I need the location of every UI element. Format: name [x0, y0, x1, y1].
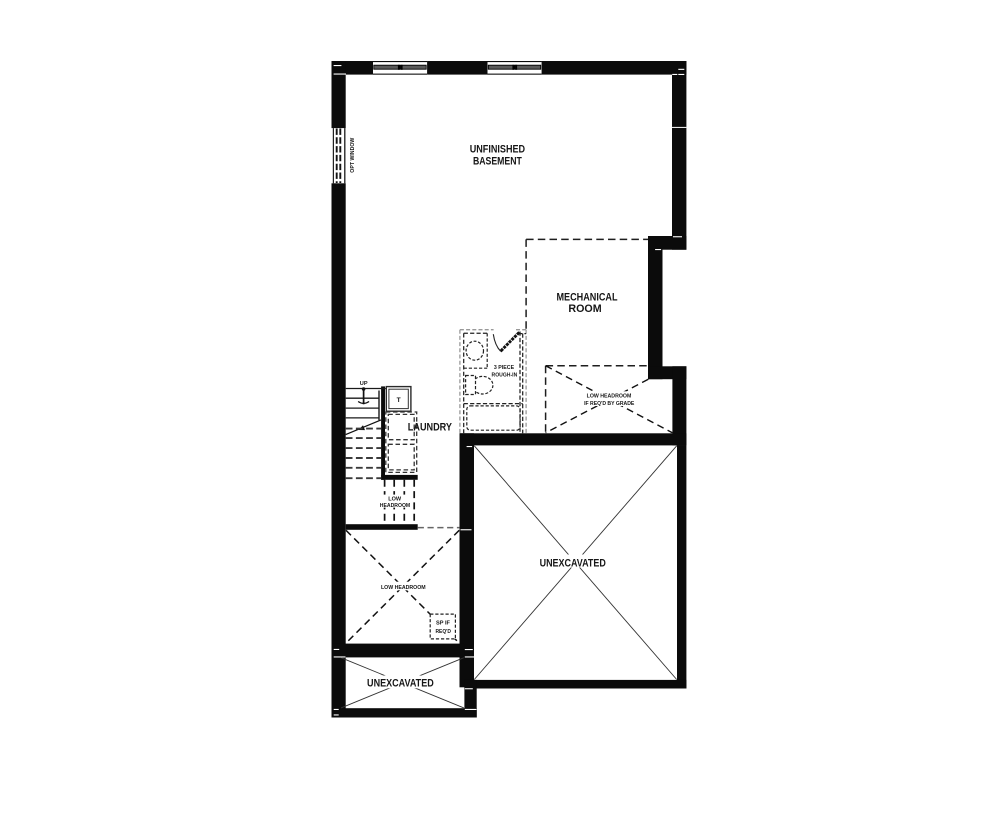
- svg-text:UNEXCAVATED: UNEXCAVATED: [540, 558, 606, 570]
- svg-text:UNFINISHED: UNFINISHED: [470, 144, 525, 156]
- svg-text:SP IF: SP IF: [436, 621, 450, 627]
- svg-text:3 PIECE: 3 PIECE: [494, 365, 515, 371]
- svg-text:REQ'D: REQ'D: [435, 629, 451, 635]
- svg-text:UP: UP: [360, 381, 368, 387]
- svg-text:UNEXCAVATED: UNEXCAVATED: [367, 678, 434, 690]
- svg-text:ROOM: ROOM: [568, 303, 601, 315]
- svg-text:LOW HEADROOM: LOW HEADROOM: [381, 585, 426, 591]
- svg-text:ROUGH-IN: ROUGH-IN: [492, 373, 518, 379]
- svg-text:LOW: LOW: [388, 497, 402, 503]
- svg-text:BASEMENT: BASEMENT: [473, 155, 522, 167]
- svg-text:LAUNDRY: LAUNDRY: [408, 422, 453, 434]
- svg-text:HEADROOM: HEADROOM: [380, 503, 411, 509]
- svg-text:OPT WINDOW: OPT WINDOW: [350, 137, 356, 173]
- svg-text:T: T: [397, 397, 401, 404]
- svg-text:LOW HEADROOM: LOW HEADROOM: [587, 393, 632, 399]
- svg-text:IF REQ'D BY GRADE: IF REQ'D BY GRADE: [584, 401, 635, 407]
